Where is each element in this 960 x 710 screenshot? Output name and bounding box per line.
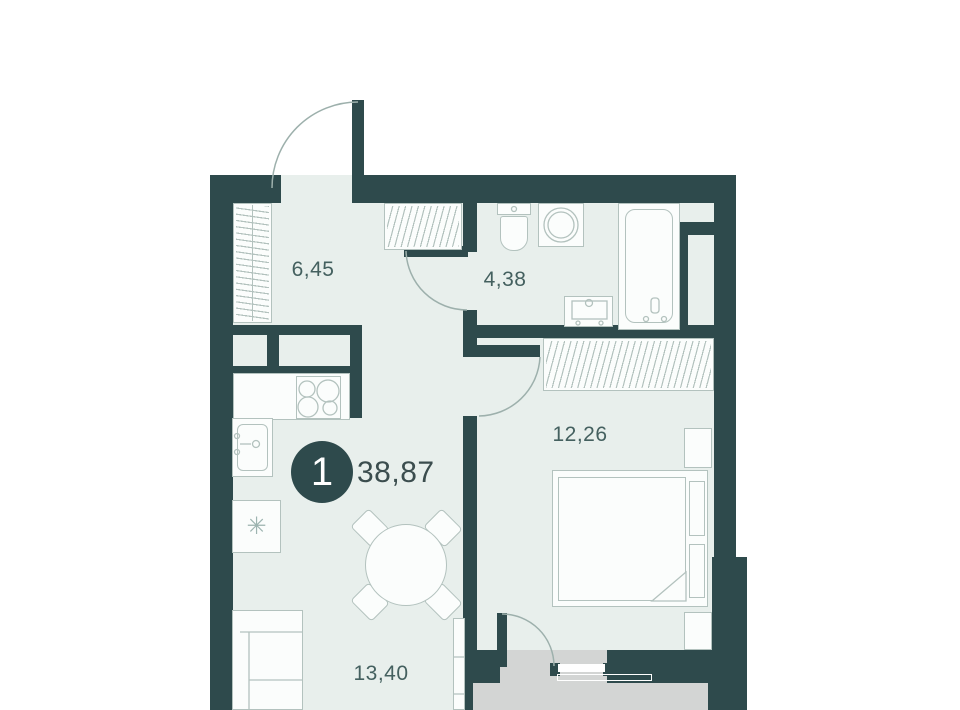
mattress bbox=[558, 477, 686, 601]
toilet-tank bbox=[497, 203, 531, 215]
balcony-door-leaf bbox=[497, 613, 507, 667]
wall bbox=[352, 175, 736, 203]
entry-door-leaf bbox=[352, 100, 364, 190]
wall bbox=[463, 416, 477, 652]
wall bbox=[350, 335, 362, 418]
entry-closet bbox=[384, 203, 462, 250]
fridge: ✳ bbox=[232, 500, 281, 553]
stove bbox=[296, 376, 341, 419]
bathroom-sink bbox=[564, 296, 613, 327]
wall bbox=[714, 203, 736, 557]
bedroom-door-leaf bbox=[477, 345, 540, 357]
nightstand bbox=[684, 428, 712, 468]
washing-machine bbox=[538, 203, 584, 247]
total-area-label: 38,87 bbox=[357, 456, 435, 490]
bedroom-wardrobe bbox=[543, 338, 714, 391]
snowflake-icon: ✳ bbox=[233, 501, 280, 552]
wall bbox=[210, 175, 233, 710]
bedroom-window bbox=[558, 664, 605, 672]
wall bbox=[225, 325, 362, 335]
toilet bbox=[500, 216, 528, 251]
wall bbox=[460, 650, 500, 683]
bathtub-basin bbox=[625, 209, 673, 323]
pillow bbox=[689, 481, 705, 536]
unit-badge: 1 bbox=[291, 441, 353, 503]
shaft-divider-wall bbox=[678, 222, 714, 235]
dining-table bbox=[365, 524, 447, 606]
entry-doorway-floor bbox=[281, 178, 352, 203]
floor-plan: ✳ bbox=[0, 0, 960, 710]
pillow bbox=[689, 544, 705, 598]
hallway-area-label: 6,45 bbox=[260, 258, 366, 282]
hanger-hatch bbox=[387, 206, 459, 247]
balcony bbox=[473, 683, 708, 710]
living-area-label: 13,40 bbox=[325, 662, 437, 686]
sofa bbox=[232, 610, 303, 710]
shelf bbox=[453, 618, 465, 710]
wardrobe-rod bbox=[252, 205, 253, 321]
bathroom-area-label: 4,38 bbox=[455, 268, 555, 292]
hanger-hatch bbox=[546, 341, 711, 388]
wall bbox=[708, 683, 747, 710]
balcony-glazing-frame bbox=[557, 674, 652, 681]
wall bbox=[463, 203, 477, 252]
kitchen-sink bbox=[237, 424, 268, 471]
nightstand bbox=[684, 612, 712, 650]
bedroom-area-label: 12,26 bbox=[525, 423, 635, 447]
